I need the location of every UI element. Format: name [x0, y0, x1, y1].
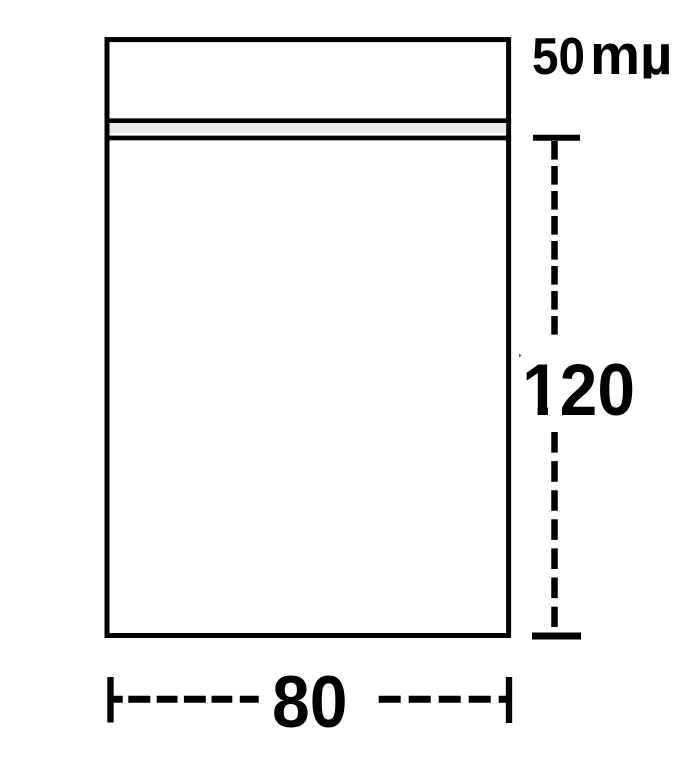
svg-text:50: 50	[532, 28, 585, 86]
svg-text:120: 120	[522, 350, 635, 431]
svg-text:80: 80	[272, 662, 348, 743]
svg-text:mµ: mµ	[590, 23, 673, 87]
